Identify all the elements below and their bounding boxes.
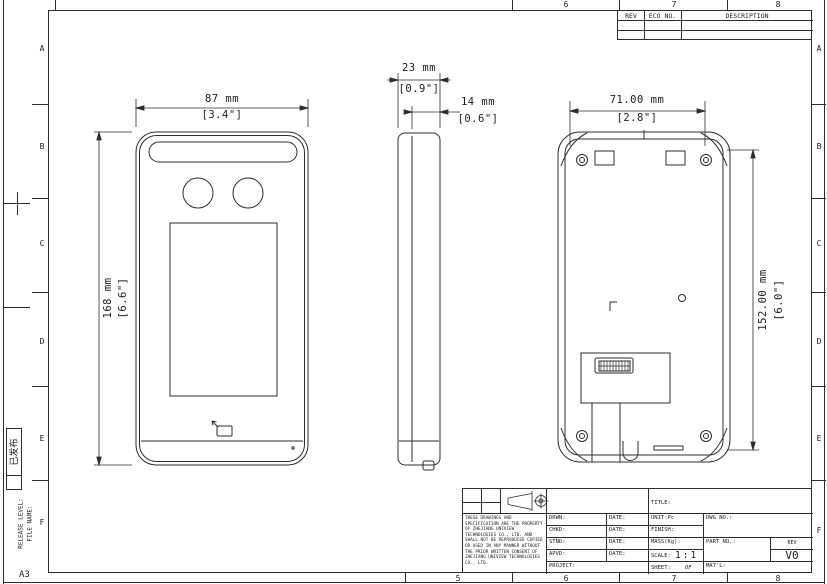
illuminator-window — [149, 142, 297, 162]
mounting-slot-left — [595, 151, 614, 165]
back-hole — [679, 295, 686, 302]
stnd-cell: STND: — [547, 538, 607, 550]
screw — [701, 431, 712, 442]
chkd-cell: CHKD: — [547, 526, 607, 538]
camera-lens-right — [233, 178, 263, 208]
front-view — [136, 132, 308, 465]
symbol-spacer-cell — [547, 489, 649, 514]
back-view — [558, 130, 730, 462]
bracket-mark — [610, 302, 617, 311]
grid-line — [463, 502, 500, 503]
disclaimer-text: THESE DRAWINGS AND SPECIFICATION ARE THE… — [463, 514, 546, 568]
scale-label: SCALE: — [651, 553, 671, 559]
side-view — [398, 133, 440, 470]
sheet-cell: SHEET: OF — [649, 562, 704, 574]
release-tab — [623, 441, 638, 461]
display-area — [170, 223, 277, 396]
part-no-cell: PART NO.: — [704, 538, 771, 562]
project-cell: PROJECT: — [547, 562, 649, 574]
date-cell: DATE: — [607, 514, 649, 526]
disclaimer-cell: THESE DRAWINGS AND SPECIFICATION ARE THE… — [463, 514, 547, 574]
card-swipe-icon — [212, 421, 232, 436]
screw — [701, 155, 712, 166]
matl-cell: MAT'L: — [704, 562, 813, 574]
scale-value: 1:1 — [675, 550, 698, 561]
mounting-slot-right — [666, 151, 685, 165]
unit-cell: UNIT:Pc — [649, 514, 704, 526]
bottom-slot — [654, 446, 683, 450]
date-cell: DATE: — [607, 526, 649, 538]
camera-lens-left — [183, 178, 213, 208]
mass-cell: MASS(Kg): — [649, 538, 704, 550]
pin-connector — [595, 358, 633, 373]
date-cell: DATE: — [607, 550, 649, 562]
sheet-label: SHEET: — [651, 565, 671, 571]
finish-cell: FINISH: — [649, 526, 704, 538]
cable-channel — [592, 403, 620, 462]
apvd-cell: APVD: — [547, 550, 607, 562]
title-block: THESE DRAWINGS AND SPECIFICATION ARE THE… — [462, 488, 812, 573]
drawing-sheet: { "frame": { "sheet_size": "A3", "releas… — [0, 0, 827, 584]
sheet-of-label: OF — [685, 565, 692, 571]
mic-hole — [292, 447, 294, 449]
drwn-cell: DRWN: — [547, 514, 607, 526]
screw — [577, 155, 588, 166]
date-cell: DATE: — [607, 538, 649, 550]
title-cell: TITLE: — [649, 489, 813, 514]
title-label: TITLE: — [649, 500, 671, 506]
dwg-no-cell: DWG NO.: — [704, 514, 813, 538]
screw — [577, 431, 588, 442]
scale-cell: SCALE: 1:1 — [649, 550, 704, 562]
projection-grid — [463, 489, 547, 514]
rev-value-cell: V0 — [771, 550, 813, 562]
grid-line — [500, 489, 501, 514]
